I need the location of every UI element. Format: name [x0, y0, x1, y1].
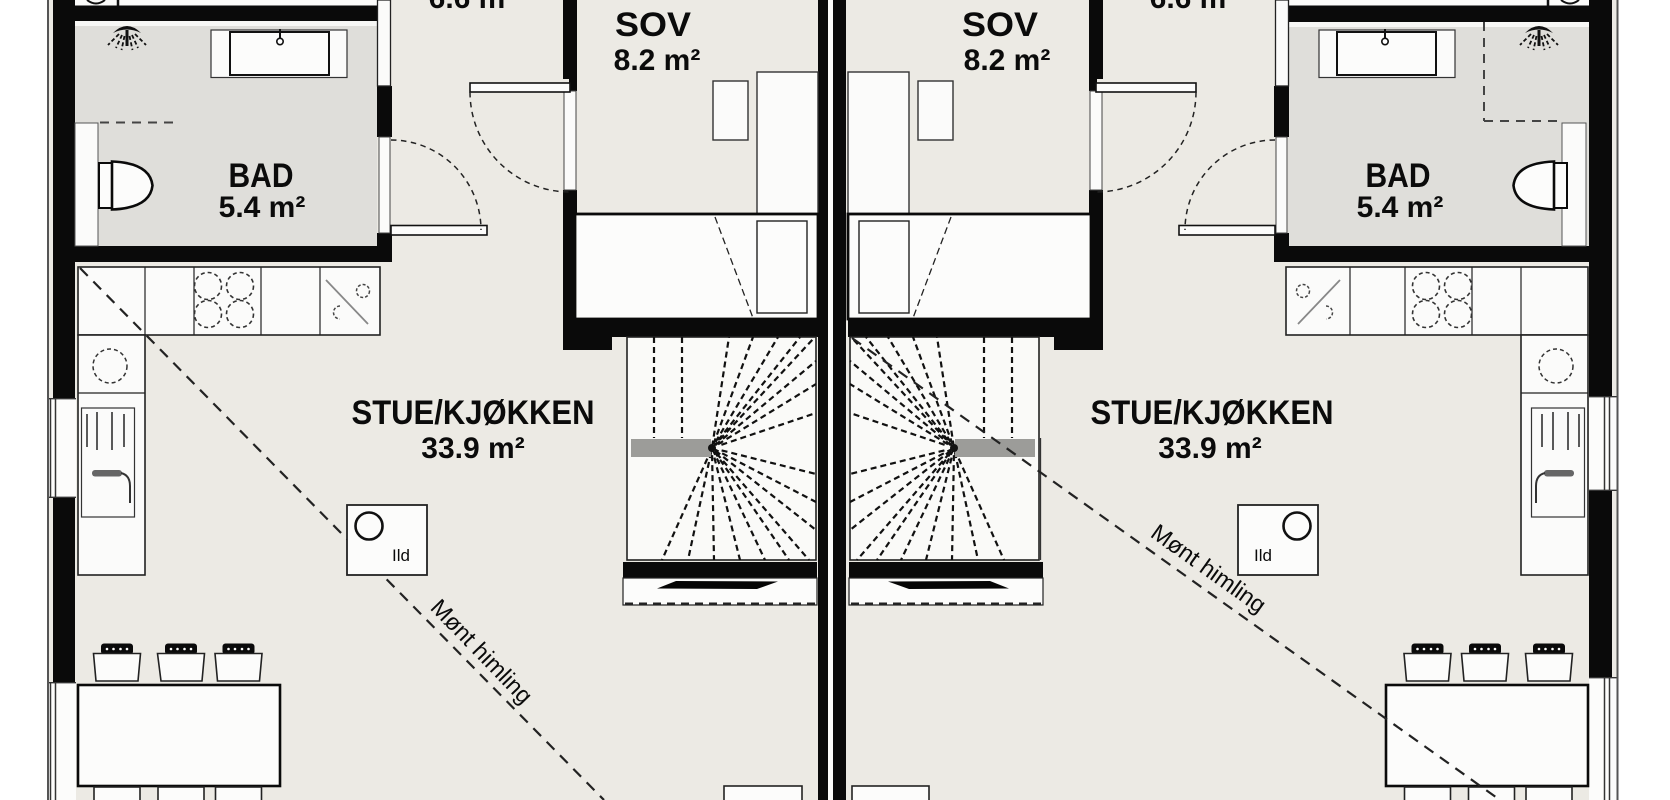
svg-text:8.2 m²: 8.2 m² — [614, 44, 701, 77]
svg-text:STUE/KJØKKEN: STUE/KJØKKEN — [352, 394, 595, 432]
svg-text:Ild: Ild — [392, 546, 410, 565]
svg-text:5.4 m²: 5.4 m² — [1357, 191, 1444, 224]
svg-text:BAD: BAD — [229, 157, 294, 195]
svg-text:6.6 m²: 6.6 m² — [429, 0, 516, 15]
svg-text:33.9 m²: 33.9 m² — [1158, 432, 1261, 465]
svg-text:BAD: BAD — [1366, 157, 1431, 195]
svg-text:STUE/KJØKKEN: STUE/KJØKKEN — [1091, 394, 1334, 432]
svg-text:SOV: SOV — [615, 6, 691, 44]
svg-text:Ild: Ild — [1254, 546, 1272, 565]
svg-text:33.9 m²: 33.9 m² — [421, 432, 524, 465]
svg-text:5.4 m²: 5.4 m² — [219, 191, 306, 224]
svg-text:8.2 m²: 8.2 m² — [964, 44, 1051, 77]
svg-text:SOV: SOV — [962, 6, 1038, 44]
svg-text:6.6 m²: 6.6 m² — [1150, 0, 1237, 15]
